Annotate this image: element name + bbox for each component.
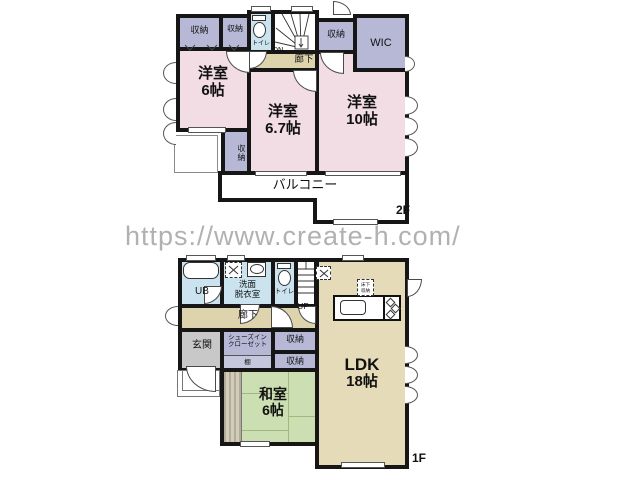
window-1f-top-2 [227,255,245,261]
label-room6: 洋室6帖 [181,66,245,100]
window-2f-left-1 [163,62,176,84]
label-closet-2f-a: 収納 [178,25,221,35]
toilet-bowl-icon-2f [253,22,266,38]
door-arc-back-door [407,279,422,297]
window-2f-room10-balcony [325,171,401,176]
label-stairs-up: UP [292,302,314,312]
watermark-url: https://www.create-h.com/ [125,221,461,252]
window-2f-room67-balcony [255,171,307,176]
label-room67: 洋室6.7帖 [253,104,313,138]
window-2f-toilet-top [251,6,271,12]
window-2f-right-4 [405,138,418,157]
kitchen-sink [340,300,366,315]
toilet-icon-1f [277,263,291,269]
label-wic: WIC [357,37,405,49]
washer-space-box [225,262,242,278]
label-entrance: 玄関 [182,340,222,351]
washbasin-bowl-icon [250,264,264,274]
label-washroom: 洗面脱衣室 [222,280,273,299]
window-washitsu-bottom [240,441,270,447]
window-2f-stairs-top [291,6,313,12]
x-mark-icon [319,269,329,278]
ldk-equipment-box [316,266,331,280]
label-toilet-1f: トイレ [271,288,298,295]
label-hallway-1f: 廊下 [228,310,268,321]
label-washitsu: 和室6帖 [248,387,298,418]
label-underfloor: 床下収納 [361,282,370,293]
bathtub-icon [183,262,219,279]
label-closet-2f-b: 収納 [220,25,250,34]
window-1f-right-1 [405,346,418,364]
toilet-bowl-icon-1f [278,270,291,286]
window-1f-right-3 [405,386,418,404]
window-2f-right-1 [405,56,415,72]
x-mark-icon [228,265,239,275]
label-stairs-dn: DN [268,46,288,54]
label-closet-1f-bottom: 収納 [273,356,317,366]
label-closet-2f-c: 収納 [318,29,354,39]
window-2f-room6-bottom [188,127,226,133]
floor-plan: 洋室6帖 洋室6.7帖 洋室10帖 収納 収納 収納 WIC トイレ 廊下 DN… [0,0,640,480]
window-1f-top-3 [342,255,364,261]
door-arc-closet-2f-c [333,1,351,15]
eaves-outline-2f [174,135,218,173]
window-1f-right-2 [405,366,418,384]
toilet-icon-2f [252,15,266,21]
label-room10: 洋室10帖 [331,95,393,129]
label-hallway-2f: 廊下 [287,55,321,66]
label-unit-bath: UB [184,286,220,297]
label-floor-2f: 2F [396,203,410,217]
window-1f-left [165,306,178,326]
label-balcony: バルコニー [255,178,355,193]
tatami-line-h3 [242,430,288,431]
label-ldk: LDK18帖 [330,355,394,391]
window-2f-left-3 [163,122,176,145]
window-1f-top-1 [186,255,216,261]
washitsu-wood-strip [224,372,242,442]
label-shelf: 棚 [224,359,271,366]
window-2f-right-2 [405,96,418,115]
label-floor-1f: 1F [412,451,426,465]
underfloor-storage-box: 床下収納 [357,279,374,296]
window-ldk-bottom [341,462,385,468]
window-2f-right-3 [405,117,418,136]
closet-door-marks-2f [183,44,245,52]
label-closet-2f-d: 収納 [227,136,245,170]
label-shoes-closet: シューズインクローゼット [221,334,274,349]
label-closet-1f-top: 収納 [273,334,317,344]
window-2f-left-2 [163,98,176,121]
shoes-shelf: 棚 [224,355,271,369]
